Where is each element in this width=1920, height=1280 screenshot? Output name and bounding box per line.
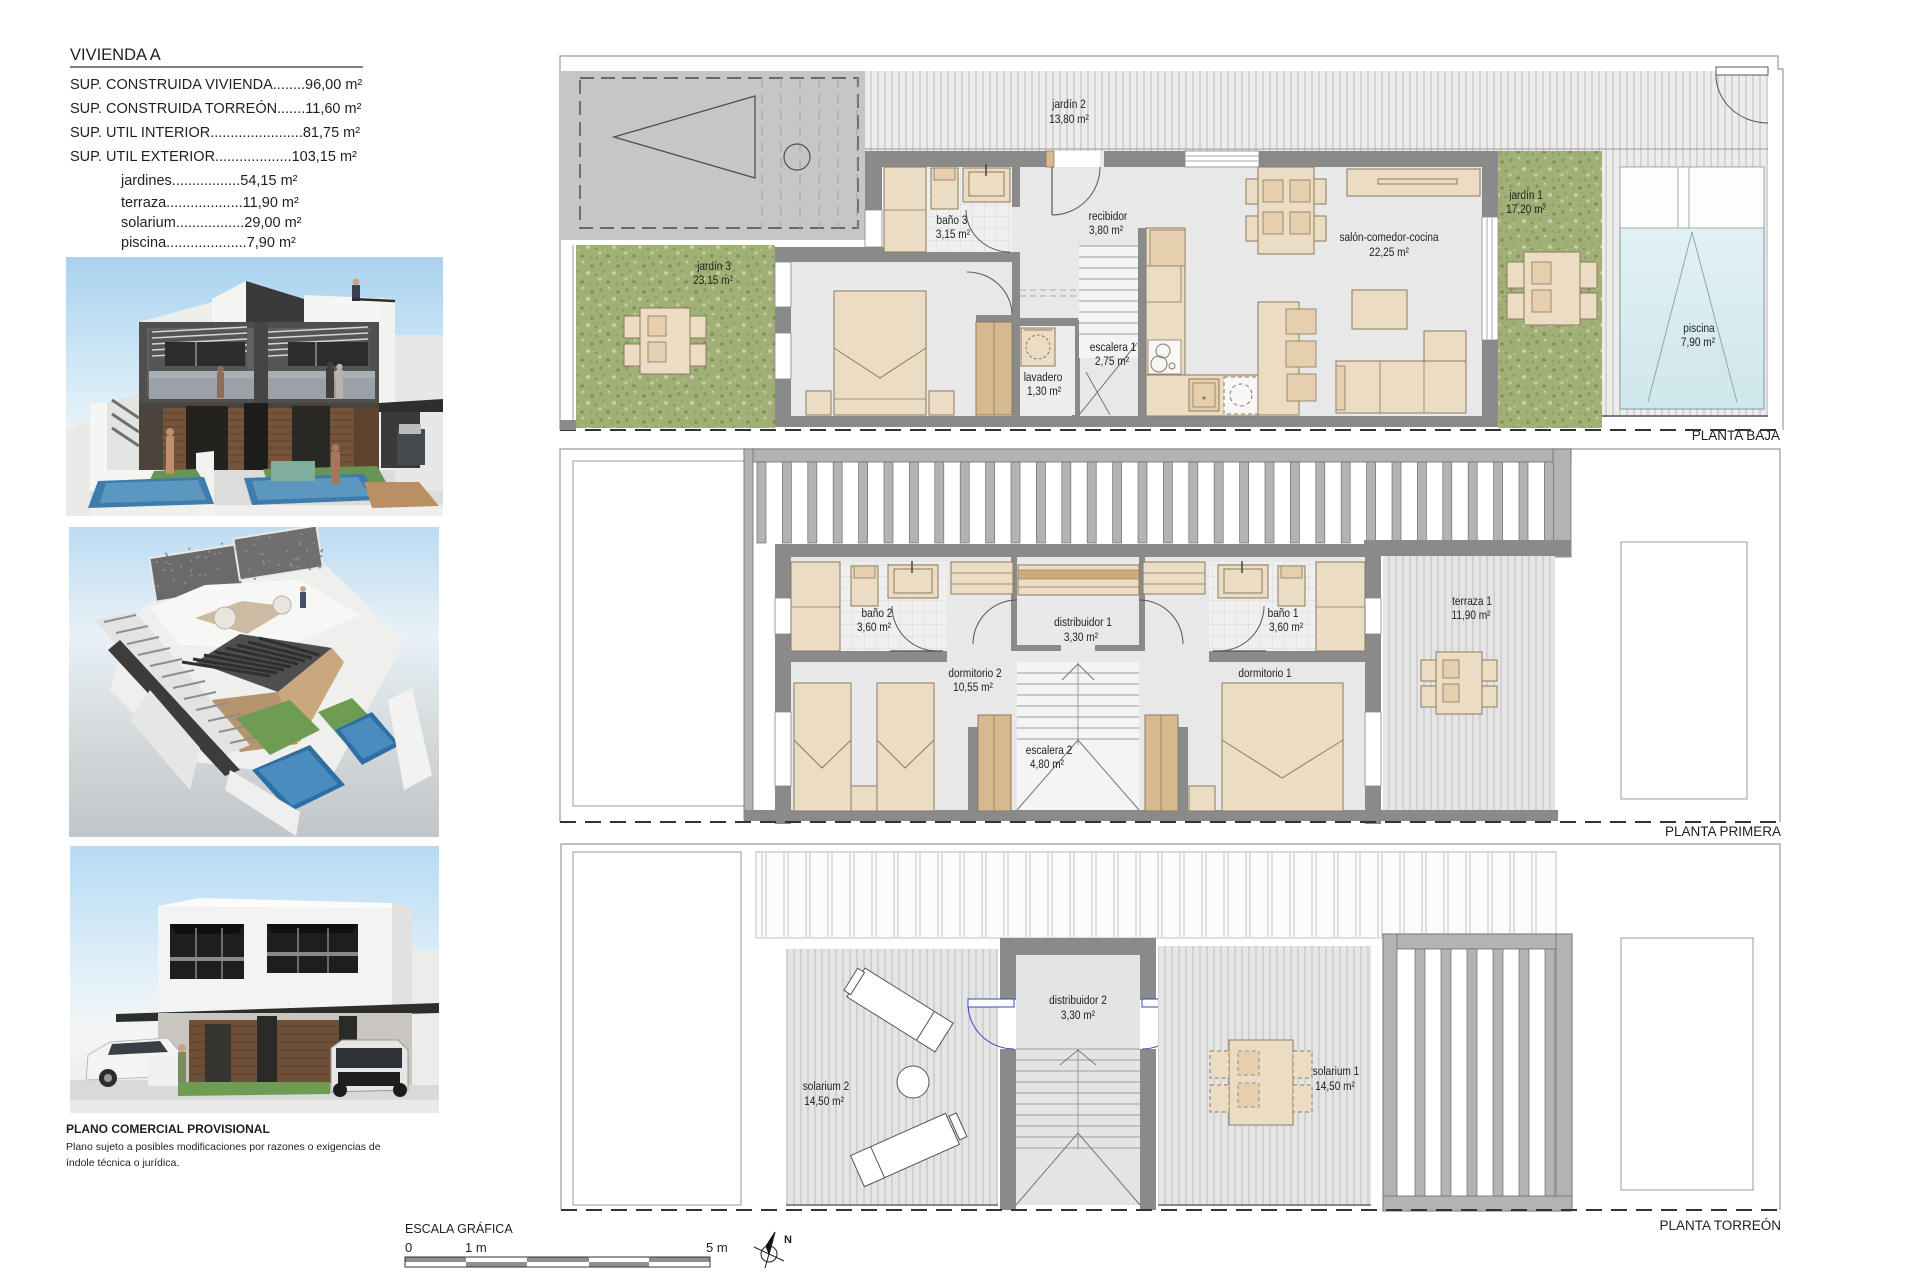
svg-text:2,75 m²: 2,75 m² bbox=[1095, 355, 1129, 368]
svg-text:jardín 2: jardín 2 bbox=[1051, 98, 1086, 111]
svg-text:jardín 1: jardín 1 bbox=[1508, 189, 1543, 202]
svg-text:jardines.................54,15: jardines.................54,15 m² bbox=[120, 173, 298, 189]
svg-text:VIVIENDA A: VIVIENDA A bbox=[70, 46, 161, 64]
svg-text:salón-comedor-cocina: salón-comedor-cocina bbox=[1339, 231, 1439, 244]
svg-text:SUP. UTIL INTERIOR............: SUP. UTIL INTERIOR......................… bbox=[70, 125, 360, 141]
svg-text:23,15 m²: 23,15 m² bbox=[693, 274, 733, 287]
svg-text:22,25 m²: 22,25 m² bbox=[1369, 246, 1409, 259]
svg-text:PLANO COMERCIAL PROVISIONAL: PLANO COMERCIAL PROVISIONAL bbox=[66, 1122, 270, 1136]
svg-text:escalera 1: escalera 1 bbox=[1090, 341, 1137, 354]
svg-text:17,20 m²: 17,20 m² bbox=[1506, 203, 1546, 216]
svg-text:14,50 m²: 14,50 m² bbox=[1315, 1080, 1355, 1093]
svg-text:recibidor: recibidor bbox=[1089, 210, 1128, 223]
svg-text:lavadero: lavadero bbox=[1024, 371, 1063, 384]
svg-text:3,80 m²: 3,80 m² bbox=[1089, 224, 1123, 237]
svg-text:11,90 m²: 11,90 m² bbox=[1451, 609, 1490, 622]
svg-text:distribuidor 2: distribuidor 2 bbox=[1049, 994, 1107, 1007]
svg-text:3,15 m²: 3,15 m² bbox=[936, 228, 970, 241]
svg-text:PLANTA PRIMERA: PLANTA PRIMERA bbox=[1665, 824, 1781, 839]
svg-text:escalera 2: escalera 2 bbox=[1026, 744, 1073, 757]
svg-text:ESCALA GRÁFICA: ESCALA GRÁFICA bbox=[405, 1221, 513, 1236]
svg-text:dormitorio 1: dormitorio 1 bbox=[1238, 667, 1291, 680]
svg-text:3,30 m²: 3,30 m² bbox=[1061, 1009, 1095, 1022]
svg-text:solarium 1: solarium 1 bbox=[1313, 1065, 1359, 1078]
svg-text:10,55 m²: 10,55 m² bbox=[953, 681, 993, 694]
svg-text:piscina: piscina bbox=[1683, 322, 1715, 335]
svg-text:jardín 3: jardín 3 bbox=[696, 260, 731, 273]
svg-text:5 m: 5 m bbox=[706, 1240, 728, 1255]
svg-text:SUP. UTIL EXTERIOR............: SUP. UTIL EXTERIOR...................103… bbox=[70, 149, 357, 165]
svg-text:dormitorio 2: dormitorio 2 bbox=[948, 667, 1001, 680]
svg-text:4,80 m²: 4,80 m² bbox=[1030, 758, 1064, 771]
svg-text:13,80 m²: 13,80 m² bbox=[1049, 113, 1089, 126]
svg-text:piscina....................7,9: piscina....................7,90 m² bbox=[121, 235, 296, 251]
svg-text:3,60 m²: 3,60 m² bbox=[1269, 621, 1303, 634]
svg-text:3,60 m²: 3,60 m² bbox=[857, 621, 891, 634]
svg-text:baño 2: baño 2 bbox=[862, 607, 893, 620]
svg-text:PLANTA TORREÓN: PLANTA TORREÓN bbox=[1659, 1218, 1781, 1233]
svg-text:distribuidor 1: distribuidor 1 bbox=[1054, 616, 1112, 629]
svg-text:índole técnica o jurídica.: índole técnica o jurídica. bbox=[66, 1157, 179, 1169]
svg-text:solarium 2: solarium 2 bbox=[803, 1080, 849, 1093]
svg-text:SUP. CONSTRUIDA TORREÓN.......: SUP. CONSTRUIDA TORREÓN.......11,60 m² bbox=[70, 100, 362, 117]
svg-text:N: N bbox=[784, 1234, 792, 1246]
svg-text:baño 3: baño 3 bbox=[937, 214, 968, 227]
svg-text:baño 1: baño 1 bbox=[1268, 607, 1299, 620]
svg-text:1 m: 1 m bbox=[465, 1240, 487, 1255]
svg-text:3,30 m²: 3,30 m² bbox=[1064, 631, 1098, 644]
svg-text:1,30 m²: 1,30 m² bbox=[1027, 385, 1061, 398]
svg-text:7,90 m²: 7,90 m² bbox=[1681, 336, 1715, 349]
svg-text:14,50 m²: 14,50 m² bbox=[804, 1095, 844, 1108]
svg-text:terraza...................11,9: terraza...................11,90 m² bbox=[121, 195, 299, 211]
svg-text:solarium.................29,00: solarium.................29,00 m² bbox=[121, 215, 302, 231]
svg-text:0: 0 bbox=[405, 1240, 412, 1255]
svg-text:Plano sujeto a posibles modifi: Plano sujeto a posibles modificaciones p… bbox=[66, 1141, 381, 1153]
svg-text:SUP. CONSTRUIDA VIVIENDA......: SUP. CONSTRUIDA VIVIENDA........96,00 m² bbox=[70, 77, 362, 93]
svg-text:terraza 1: terraza 1 bbox=[1452, 595, 1492, 608]
